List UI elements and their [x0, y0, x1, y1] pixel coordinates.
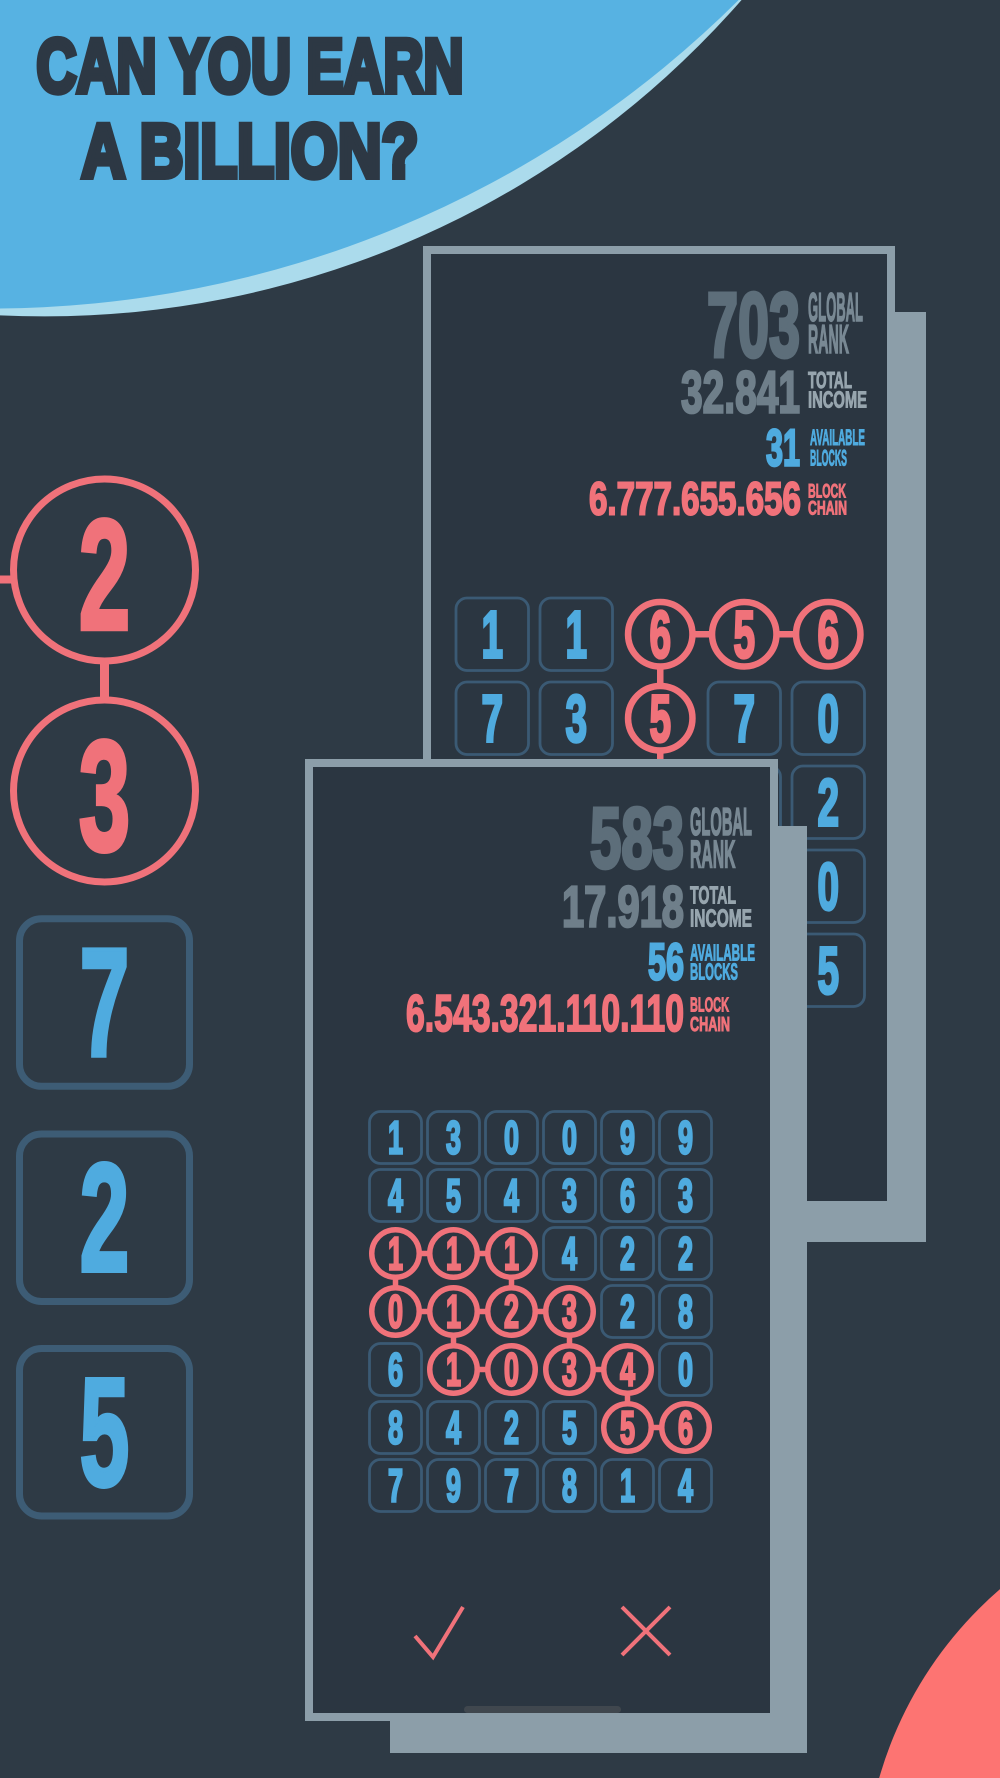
- svg-text:17.918: 17.918: [562, 874, 684, 939]
- svg-text:3: 3: [446, 1112, 461, 1164]
- svg-text:2: 2: [504, 1402, 519, 1454]
- svg-text:5: 5: [649, 682, 671, 756]
- svg-text:BLOCKS: BLOCKS: [810, 445, 847, 470]
- svg-text:BLOCKS: BLOCKS: [690, 959, 738, 985]
- svg-text:3: 3: [678, 1170, 693, 1222]
- svg-text:1: 1: [565, 598, 587, 672]
- svg-text:583: 583: [590, 790, 684, 886]
- svg-text:8: 8: [678, 1286, 693, 1338]
- svg-text:5: 5: [80, 1346, 130, 1518]
- svg-text:1: 1: [446, 1228, 461, 1280]
- svg-text:2: 2: [620, 1286, 635, 1338]
- svg-text:1: 1: [620, 1460, 635, 1512]
- svg-text:3: 3: [562, 1286, 577, 1338]
- svg-text:2: 2: [620, 1228, 635, 1280]
- svg-text:0: 0: [817, 850, 839, 924]
- svg-text:1: 1: [481, 598, 503, 672]
- svg-text:1: 1: [446, 1344, 461, 1396]
- svg-text:5: 5: [817, 934, 839, 1008]
- svg-text:31: 31: [766, 419, 800, 477]
- svg-text:CHAIN: CHAIN: [808, 498, 847, 520]
- svg-text:7: 7: [80, 917, 130, 1089]
- svg-text:5: 5: [733, 598, 755, 672]
- svg-text:56: 56: [648, 934, 684, 992]
- svg-text:7: 7: [733, 682, 755, 756]
- svg-text:2: 2: [80, 1132, 130, 1304]
- svg-text:6: 6: [649, 598, 671, 672]
- svg-text:4: 4: [562, 1228, 577, 1280]
- svg-text:9: 9: [620, 1112, 635, 1164]
- svg-text:5: 5: [446, 1170, 461, 1222]
- svg-text:3: 3: [79, 709, 131, 884]
- svg-text:A BILLION?: A BILLION?: [82, 109, 419, 194]
- svg-text:4: 4: [504, 1170, 519, 1222]
- svg-text:INCOME: INCOME: [808, 387, 867, 413]
- svg-text:3: 3: [562, 1344, 577, 1396]
- svg-text:7: 7: [504, 1460, 519, 1512]
- svg-text:2: 2: [79, 488, 131, 663]
- svg-text:6: 6: [388, 1344, 403, 1396]
- svg-text:0: 0: [504, 1112, 519, 1164]
- svg-text:8: 8: [388, 1402, 403, 1454]
- svg-text:2: 2: [817, 766, 839, 840]
- svg-text:0: 0: [388, 1286, 403, 1338]
- svg-text:0: 0: [562, 1112, 577, 1164]
- svg-text:1: 1: [388, 1228, 403, 1280]
- svg-text:9: 9: [446, 1460, 461, 1512]
- svg-text:4: 4: [620, 1344, 635, 1396]
- svg-text:6: 6: [620, 1170, 635, 1222]
- svg-text:RANK: RANK: [808, 316, 849, 362]
- svg-text:7: 7: [481, 682, 503, 756]
- svg-text:1: 1: [446, 1286, 461, 1338]
- svg-text:7: 7: [388, 1460, 403, 1512]
- svg-text:CHAIN: CHAIN: [690, 1014, 730, 1036]
- svg-text:3: 3: [562, 1170, 577, 1222]
- svg-text:4: 4: [678, 1460, 693, 1512]
- svg-text:6: 6: [678, 1402, 693, 1454]
- svg-text:4: 4: [388, 1170, 403, 1222]
- svg-text:1: 1: [504, 1228, 519, 1280]
- svg-text:5: 5: [620, 1402, 635, 1454]
- svg-text:RANK: RANK: [690, 833, 736, 876]
- svg-text:4: 4: [446, 1402, 461, 1454]
- svg-text:9: 9: [678, 1112, 693, 1164]
- svg-text:3: 3: [565, 682, 587, 756]
- svg-text:2: 2: [678, 1228, 693, 1280]
- svg-text:32.841: 32.841: [681, 359, 800, 426]
- svg-text:0: 0: [817, 682, 839, 756]
- svg-text:CAN YOU EARN: CAN YOU EARN: [37, 24, 464, 109]
- svg-text:1: 1: [388, 1112, 403, 1164]
- svg-text:2: 2: [504, 1286, 519, 1338]
- svg-text:8: 8: [562, 1460, 577, 1512]
- svg-text:0: 0: [504, 1344, 519, 1396]
- svg-text:6.543.321.110.110: 6.543.321.110.110: [406, 985, 684, 1043]
- svg-text:6.777.655.656: 6.777.655.656: [589, 473, 801, 525]
- svg-text:0: 0: [678, 1344, 693, 1396]
- svg-text:INCOME: INCOME: [690, 905, 752, 932]
- svg-text:5: 5: [562, 1402, 577, 1454]
- svg-text:6: 6: [817, 598, 839, 672]
